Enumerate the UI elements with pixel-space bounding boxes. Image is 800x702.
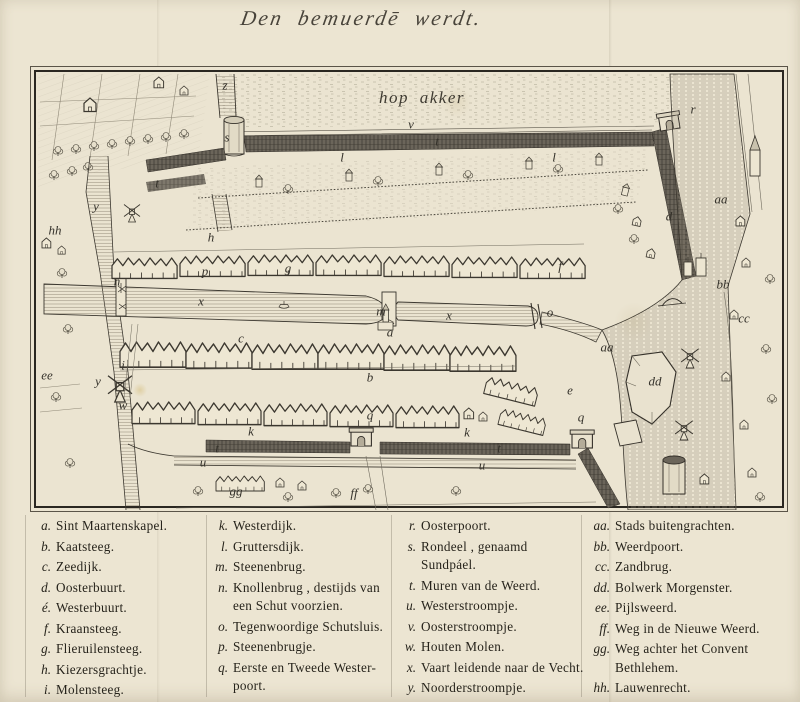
map-marker-t: t	[497, 442, 501, 455]
map-marker-h: h	[208, 231, 215, 244]
map-marker-t: t	[215, 442, 219, 455]
north-canal-house-row	[112, 244, 585, 278]
legend-separator	[206, 515, 207, 697]
map-marker-l: l	[552, 151, 556, 164]
legend-key: s.	[398, 538, 416, 575]
legend-item-c: c.Zeedijk.	[33, 558, 205, 577]
legend-label: Knollenbrug , destijds van een Schut voo…	[233, 579, 380, 616]
south-wall	[206, 440, 620, 508]
legend-key: l.	[210, 538, 228, 557]
legend-key: c.	[33, 558, 51, 577]
map-marker-b: b	[367, 371, 374, 384]
south-house-row	[132, 402, 487, 428]
legend-item-gg: gg.Weg achter het Convent Bethlehem.	[586, 640, 798, 677]
title-wrap: Den bemuerdē werdt.	[0, 6, 724, 31]
legend-label: Zandbrug.	[615, 558, 672, 577]
legend-item-ee: ee.Pijlsweerd.	[586, 599, 798, 618]
vecht-canal	[44, 284, 602, 342]
legend-key: cc.	[586, 558, 610, 577]
south-canal-house-row	[120, 342, 516, 371]
legend-label: Lauwenrecht.	[615, 679, 691, 698]
legend-label: Kaatsteeg.	[56, 538, 114, 557]
map-marker-y: y	[95, 375, 101, 388]
legend-item-l: l.Gruttersdijk.	[210, 538, 394, 557]
legend-item-aa: aa.Stads buitengrachten.	[586, 517, 798, 536]
legend-item-k: k.Westerdijk.	[210, 517, 394, 536]
map-marker-v: v	[408, 118, 414, 131]
map-marker-k: k	[248, 425, 254, 438]
legend-item-w: w.Houten Molen.	[398, 638, 584, 657]
legend-label: Steenenbrugje.	[233, 638, 316, 657]
legend-label: Tegenwoordige Schutsluis.	[233, 618, 383, 637]
map-marker-d: d	[666, 210, 673, 223]
map-marker-q: q	[367, 409, 374, 422]
legend-key: n.	[210, 579, 228, 616]
legend-item-o: o.Tegenwoordige Schutsluis.	[210, 618, 394, 637]
map-marker-k: k	[464, 426, 470, 439]
southeast-house-block	[484, 376, 547, 435]
well-tower-icon	[663, 456, 685, 494]
legend-item-i: i.Molensteeg.	[33, 681, 205, 700]
legend-item-p: p.Steenenbrugje.	[210, 638, 394, 657]
legend-key: f.	[33, 620, 51, 639]
legend-key: d.	[33, 579, 51, 598]
map-marker-t: t	[155, 177, 159, 190]
legend-label: Westerdijk.	[233, 517, 296, 536]
map-marker-t: t	[435, 135, 439, 148]
legend-key: hh.	[586, 679, 610, 698]
legend-key: é.	[33, 599, 51, 618]
map-marker-l: l	[340, 151, 344, 164]
map-marker-aa: aa	[715, 193, 728, 206]
map-engraving	[36, 72, 786, 510]
legend-label: Noorderstroompje.	[421, 679, 526, 698]
legend-label: Westerbuurt.	[56, 599, 127, 618]
map-marker-x: x	[446, 309, 452, 322]
legend-item-u: u.Westerstroompje.	[398, 597, 584, 616]
legend-item-y: y.Noorderstroompje.	[398, 679, 584, 698]
legend-item-ff: ff.Weg in de Nieuwe Weerd.	[586, 620, 798, 639]
legend-label: Steenenbrug.	[233, 558, 306, 577]
map-panel: hop akker zsvttttraaaadllhhyyhpnxxgmaicf…	[30, 66, 788, 512]
map-marker-e: e	[567, 384, 573, 397]
print-page: Den bemuerdē werdt.	[0, 0, 800, 702]
legend-item-n: n.Knollenbrug , destijds van een Schut v…	[210, 579, 394, 616]
legend-key: t.	[398, 577, 416, 596]
legend-key: o.	[210, 618, 228, 637]
legend-separator	[25, 515, 26, 697]
legend-key: ee.	[586, 599, 610, 618]
legend-column-1: a.Sint Maartenskapel.b.Kaatsteeg.c.Zeedi…	[33, 517, 205, 702]
legend-key: dd.	[586, 579, 610, 598]
legend-item-é: é.Westerbuurt.	[33, 599, 205, 618]
legend-item-h: h.Kiezersgrachtje.	[33, 661, 205, 680]
map-marker-ee: ee	[41, 369, 53, 382]
map-marker-ff: ff	[350, 487, 357, 500]
legend-label: Zeedijk.	[56, 558, 102, 577]
legend-label: Weg achter het Convent Bethlehem.	[615, 640, 748, 677]
legend-key: bb.	[586, 538, 610, 557]
map-marker-s: s	[224, 131, 229, 144]
map-marker-n: n	[114, 275, 121, 288]
map-marker-x: x	[198, 295, 204, 308]
map-marker-z: z	[222, 79, 227, 92]
legend-key: u.	[398, 597, 416, 616]
legend-key: v.	[398, 618, 416, 637]
legend-key: p.	[210, 638, 228, 657]
map-marker-o: o	[547, 306, 554, 319]
map-marker-y: y	[93, 200, 99, 213]
legend-label: Gruttersdijk.	[233, 538, 304, 557]
legend-item-a: a.Sint Maartenskapel.	[33, 517, 205, 536]
windmill-icon	[124, 205, 140, 223]
legend-item-s: s.Rondeel , genaamd Sundpáel.	[398, 538, 584, 575]
west-edge-strip	[40, 238, 82, 468]
map-marker-m: m	[376, 305, 385, 318]
legend-item-r: r.Oosterpoort.	[398, 517, 584, 536]
legend-label: Molensteeg.	[56, 681, 124, 700]
legend-item-q: q.Eerste en Tweede Wester- poort.	[210, 659, 394, 696]
legend-key: x.	[398, 659, 416, 678]
map-marker-a: a	[387, 326, 394, 339]
legend-label: Oosterstroompje.	[421, 618, 517, 637]
legend-label: Bolwerk Morgenster.	[615, 579, 733, 598]
map-marker-u: u	[479, 459, 486, 472]
legend-label: Pijlsweerd.	[615, 599, 677, 618]
westerpoort-1-gate-icon	[349, 428, 373, 446]
map-marker-g: g	[285, 262, 292, 275]
map-marker-r: r	[690, 103, 695, 116]
legend-label: Vaart leidende naar de Vecht.	[421, 659, 584, 678]
legend-label: Houten Molen.	[421, 638, 505, 657]
map-marker-p: p	[202, 265, 209, 278]
legend-key: q.	[210, 659, 228, 696]
legend-label: Weerdpoort.	[615, 538, 684, 557]
northwest-fields	[38, 74, 210, 190]
legend: a.Sint Maartenskapel.b.Kaatsteeg.c.Zeedi…	[0, 513, 800, 702]
legend-label: Kraansteeg.	[56, 620, 122, 639]
legend-label: Sint Maartenskapel.	[56, 517, 167, 536]
legend-key: y.	[398, 679, 416, 698]
map-marker-hh: hh	[49, 224, 62, 237]
legend-key: h.	[33, 661, 51, 680]
legend-column-2: k.Westerdijk.l.Gruttersdijk.m.Steenenbru…	[210, 517, 394, 698]
legend-key: m.	[210, 558, 228, 577]
legend-item-t: t.Muren van de Weerd.	[398, 577, 584, 596]
legend-key: aa.	[586, 517, 610, 536]
legend-item-b: b.Kaatsteeg.	[33, 538, 205, 557]
legend-label: Oosterbuurt.	[56, 579, 126, 598]
legend-item-v: v.Oosterstroompje.	[398, 618, 584, 637]
map-border	[34, 70, 784, 508]
map-marker-dd: dd	[649, 375, 662, 388]
legend-item-dd: dd.Bolwerk Morgenster.	[586, 579, 798, 598]
westerpoort-2-gate-icon	[570, 430, 594, 448]
legend-key: r.	[398, 517, 416, 536]
hop-akker-label: hop akker	[379, 88, 465, 108]
map-marker-i: i	[121, 359, 125, 372]
legend-label: Eerste en Tweede Wester- poort.	[233, 659, 376, 696]
map-marker-u: u	[200, 456, 207, 469]
legend-item-f: f.Kraansteeg.	[33, 620, 205, 639]
map-marker-bb: bb	[717, 278, 730, 291]
legend-label: Stads buitengrachten.	[615, 517, 735, 536]
legend-column-4: aa.Stads buitengrachten.bb.Weerdpoort.cc…	[586, 517, 798, 700]
legend-key: w.	[398, 638, 416, 657]
wall-strip	[186, 148, 650, 232]
map-marker-q: q	[578, 411, 585, 424]
tall-tower-icon	[750, 150, 760, 176]
legend-label: Kiezersgrachtje.	[56, 661, 147, 680]
legend-label: Rondeel , genaamd Sundpáel.	[421, 538, 584, 575]
legend-label: Westerstroompje.	[421, 597, 518, 616]
map-marker-aa: aa	[601, 341, 614, 354]
legend-item-x: x.Vaart leidende naar de Vecht.	[398, 659, 584, 678]
legend-key: i.	[33, 681, 51, 700]
map-marker-w: w	[119, 399, 128, 412]
legend-item-hh: hh.Lauwenrecht.	[586, 679, 798, 698]
legend-key: b.	[33, 538, 51, 557]
legend-item-d: d.Oosterbuurt.	[33, 579, 205, 598]
legend-label: Muren van de Weerd.	[421, 577, 540, 596]
legend-item-cc: cc.Zandbrug.	[586, 558, 798, 577]
legend-key: ff.	[586, 620, 610, 639]
legend-item-bb: bb.Weerdpoort.	[586, 538, 798, 557]
legend-label: Flieruilensteeg.	[56, 640, 142, 659]
legend-label: Oosterpoort.	[421, 517, 491, 536]
legend-key: k.	[210, 517, 228, 536]
legend-key: a.	[33, 517, 51, 536]
legend-item-g: g.Flieruilensteeg.	[33, 640, 205, 659]
map-marker-f: f	[558, 260, 562, 273]
legend-label: Weg in de Nieuwe Weerd.	[615, 620, 760, 639]
legend-column-3: r.Oosterpoort.s.Rondeel , genaamd Sundpá…	[398, 517, 584, 702]
map-marker-gg: gg	[230, 485, 243, 498]
map-marker-c: c	[238, 332, 244, 345]
map-marker-cc: cc	[738, 312, 750, 325]
legend-key: g.	[33, 640, 51, 659]
map-title: Den bemuerdē werdt.	[239, 6, 485, 31]
legend-key: gg.	[586, 640, 610, 677]
legend-item-m: m.Steenenbrug.	[210, 558, 394, 577]
